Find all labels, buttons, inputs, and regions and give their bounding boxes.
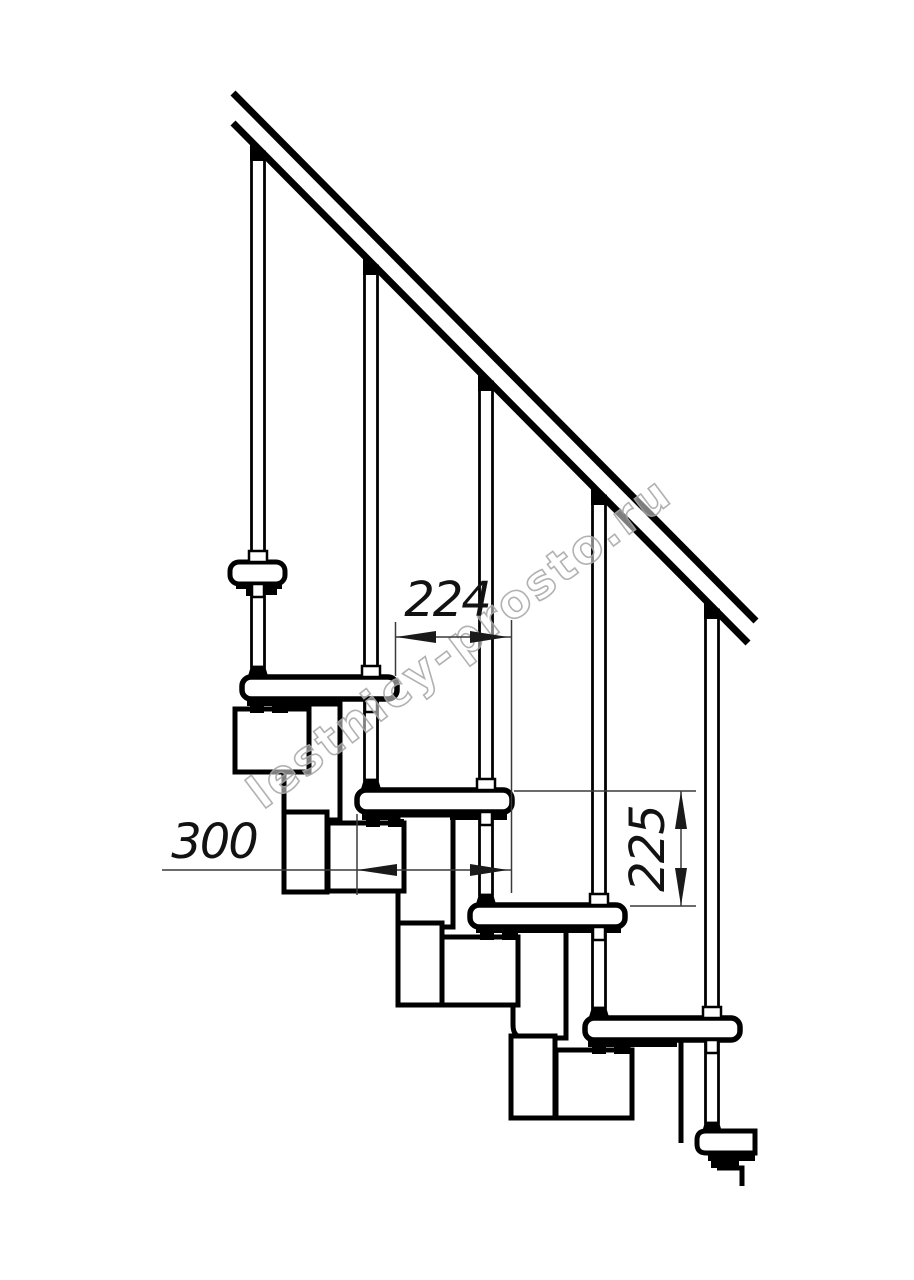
tread-fitting-icon xyxy=(476,894,496,904)
watermark: lestnicy-prosto.ru xyxy=(237,465,682,819)
module-tube xyxy=(511,1036,555,1118)
module-box xyxy=(513,928,566,1038)
tread-fitting-icon xyxy=(589,1007,609,1017)
tread-fitting-icon xyxy=(248,666,268,676)
dimension-value: 225 xyxy=(620,806,676,892)
tread xyxy=(585,1018,740,1040)
tread-end-view xyxy=(230,562,285,584)
dimension-value: 300 xyxy=(171,814,257,870)
tread-fitting-icon xyxy=(361,779,381,789)
tread-partial xyxy=(697,1131,755,1153)
handrail xyxy=(233,93,756,643)
dimension-value: 224 xyxy=(404,572,490,628)
tread xyxy=(357,790,512,812)
module-tube xyxy=(284,812,327,892)
module-sleeve xyxy=(328,823,404,891)
module-sleeve xyxy=(556,1050,632,1118)
module-box-cutoff xyxy=(628,1042,681,1143)
staircase-drawing: lestnicy-prosto.ru 224 300 225 xyxy=(0,0,914,1280)
drawing-cutoff-step xyxy=(717,1168,742,1186)
module-sleeve xyxy=(442,937,518,1005)
staircase-drawing-page: lestnicy-prosto.ru 224 300 225 xyxy=(0,0,914,1280)
module-tube xyxy=(398,923,442,1005)
tread-fitting-icon xyxy=(702,1122,722,1132)
tread xyxy=(470,905,625,927)
